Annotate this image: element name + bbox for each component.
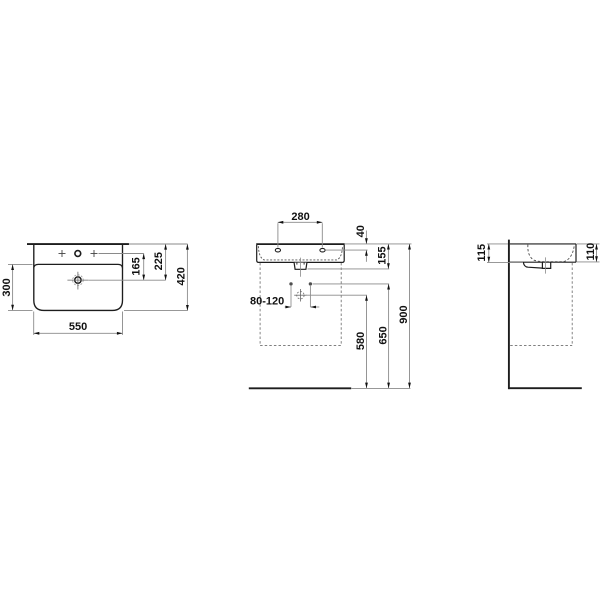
svg-text:115: 115: [476, 244, 488, 262]
svg-text:80-120: 80-120: [250, 295, 284, 307]
svg-text:300: 300: [1, 278, 13, 296]
svg-text:110: 110: [585, 243, 597, 261]
svg-text:40: 40: [355, 225, 367, 237]
svg-text:580: 580: [355, 332, 367, 350]
svg-text:420: 420: [175, 267, 187, 285]
svg-text:900: 900: [398, 305, 410, 323]
svg-text:225: 225: [153, 252, 165, 270]
svg-text:280: 280: [291, 211, 309, 223]
svg-text:550: 550: [69, 321, 87, 333]
svg-text:155: 155: [376, 246, 388, 264]
svg-text:650: 650: [377, 326, 389, 344]
svg-text:165: 165: [131, 257, 143, 275]
